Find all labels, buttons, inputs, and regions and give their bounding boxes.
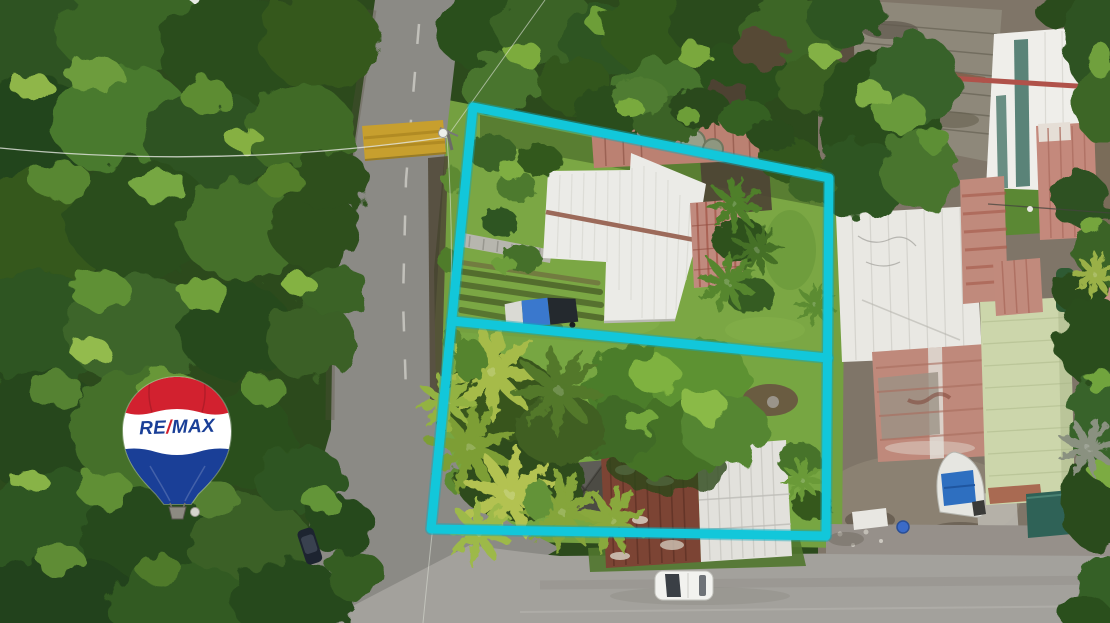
forest-left	[0, 0, 385, 623]
insulator	[1027, 206, 1033, 212]
balloon-text: RE/MAX	[139, 416, 216, 440]
windshield	[665, 574, 681, 597]
white-roof-mid	[836, 206, 982, 362]
white-car	[655, 571, 713, 600]
balloon-text-re: RE	[139, 417, 168, 439]
balloon-text-max: MAX	[171, 416, 216, 439]
big-salmon-roof	[872, 344, 990, 462]
blue-bucket	[897, 521, 909, 533]
street-lamp	[439, 129, 448, 138]
speed-bump	[362, 120, 446, 161]
aerial-photo: RE/MAX	[0, 0, 1110, 623]
